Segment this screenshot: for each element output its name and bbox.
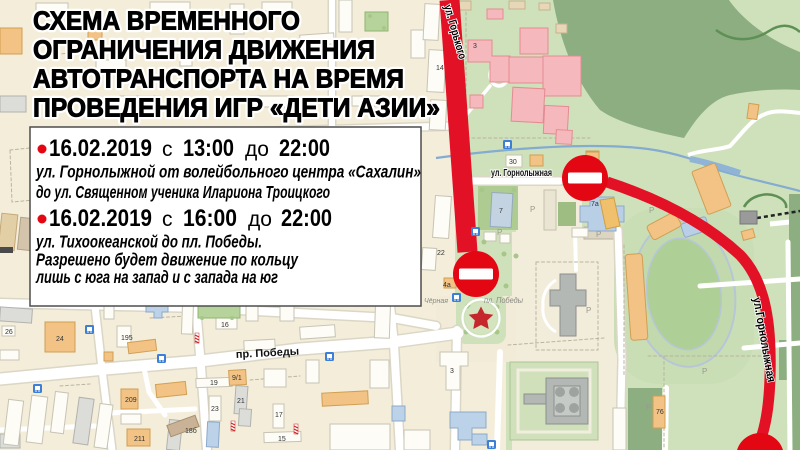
svg-text:22: 22	[437, 250, 445, 257]
svg-text:24: 24	[56, 336, 64, 343]
svg-text:15: 15	[278, 436, 286, 443]
svg-text:17: 17	[275, 412, 283, 419]
svg-text:16: 16	[221, 322, 229, 329]
svg-text:ул. Горнолыжной от волейбольно: ул. Горнолыжной от волейбольного центра …	[35, 162, 421, 182]
svg-text:23: 23	[211, 406, 219, 413]
svg-text:лишь с юга на запад и с запада: лишь с юга на запад и с запада на юг	[35, 267, 278, 287]
svg-text:P: P	[586, 306, 591, 315]
svg-text:пл. Победы: пл. Победы	[484, 295, 524, 305]
svg-text:16.02.2019с13:00до22:00: 16.02.2019с13:00до22:00	[49, 135, 330, 162]
svg-text:P: P	[596, 230, 601, 239]
svg-text:Чёрная: Чёрная	[424, 298, 448, 305]
svg-text:до ул. Священном ученика Илари: до ул. Священном ученика Илариона Троицк…	[36, 182, 330, 202]
svg-text:3: 3	[473, 43, 477, 50]
svg-text:30: 30	[509, 159, 517, 166]
svg-text:4а: 4а	[443, 282, 451, 289]
svg-text:7а: 7а	[591, 201, 599, 208]
svg-text:18б: 18б	[185, 427, 197, 435]
svg-text:ПРОВЕДЕНИЯ ИГР «ДЕТИ АЗИИ»: ПРОВЕДЕНИЯ ИГР «ДЕТИ АЗИИ»	[33, 95, 440, 123]
svg-text:76: 76	[656, 409, 664, 416]
svg-text:26: 26	[5, 329, 13, 336]
svg-text:P: P	[530, 205, 535, 214]
svg-text:16.02.2019с16:00до22:00: 16.02.2019с16:00до22:00	[49, 205, 332, 232]
svg-text:7: 7	[499, 208, 503, 215]
svg-text:14: 14	[436, 65, 444, 72]
svg-text:3: 3	[450, 368, 454, 375]
svg-text:СХЕМА ВРЕМЕННОГО: СХЕМА ВРЕМЕННОГО	[33, 8, 300, 36]
svg-text:ул. Тихоокеанской до пл. Побед: ул. Тихоокеанской до пл. Победы.	[35, 232, 262, 252]
svg-text:ОГРАНИЧЕНИЯ ДВИЖЕНИЯ: ОГРАНИЧЕНИЯ ДВИЖЕНИЯ	[33, 37, 375, 65]
svg-text:ул. Горнолыжная: ул. Горнолыжная	[491, 167, 552, 179]
svg-text:209: 209	[125, 397, 137, 404]
svg-text:P: P	[702, 367, 707, 376]
svg-text:АВТОТРАНСПОРТА НА ВРЕМЯ: АВТОТРАНСПОРТА НА ВРЕМЯ	[33, 66, 404, 94]
svg-text:9/1: 9/1	[232, 375, 242, 382]
svg-text:19: 19	[210, 380, 218, 387]
svg-text:21: 21	[237, 398, 245, 405]
svg-text:195: 195	[121, 335, 133, 342]
svg-text:P: P	[646, 403, 651, 412]
svg-text:P: P	[497, 228, 502, 237]
svg-text:211: 211	[134, 436, 145, 443]
svg-text:P: P	[649, 206, 654, 215]
